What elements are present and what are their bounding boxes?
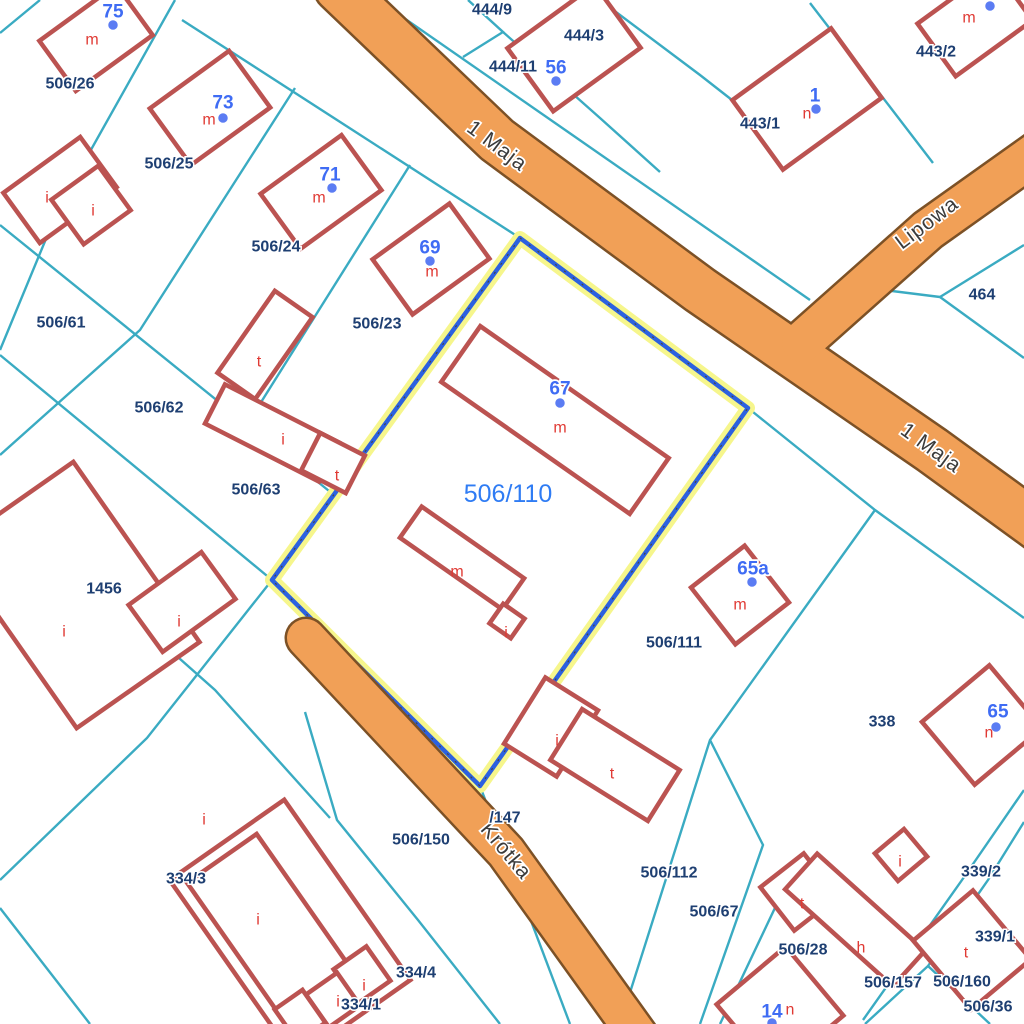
parcel-number-label: 339/1 bbox=[975, 929, 1015, 946]
parcel-number-label: 506/26 bbox=[46, 76, 95, 93]
building-type-letter: i bbox=[898, 854, 902, 871]
address-point-dot[interactable] bbox=[555, 398, 566, 409]
parcel-number-label: 1456 bbox=[86, 581, 122, 598]
address-point-dot[interactable] bbox=[767, 1018, 778, 1024]
parcel-boundary-line bbox=[0, 908, 90, 1024]
building-type-letter: i bbox=[45, 190, 49, 207]
building-type-letter: i bbox=[62, 624, 66, 641]
parcel-number-label: 506/36 bbox=[964, 999, 1013, 1016]
building-outline bbox=[150, 51, 270, 165]
parcel-number-label: 334/3 bbox=[166, 871, 206, 888]
address-point-dot[interactable] bbox=[747, 577, 758, 588]
building-type-letter: i bbox=[504, 625, 508, 642]
selected-parcel-number-label: 506/110 bbox=[464, 480, 553, 508]
parcel-boundary-line bbox=[940, 297, 1024, 358]
building-type-letter: h bbox=[857, 940, 866, 957]
parcel-boundary-line bbox=[0, 0, 40, 33]
parcel-number-label: 506/150 bbox=[392, 832, 450, 849]
parcel-number-label: 506/25 bbox=[145, 156, 194, 173]
building-outline bbox=[550, 709, 679, 821]
building-type-letter: n bbox=[786, 1002, 795, 1019]
building-type-letter: i bbox=[91, 203, 95, 220]
building-type-letter: m bbox=[962, 10, 975, 27]
building-type-letter: i bbox=[256, 912, 260, 929]
building-type-letter: m bbox=[85, 32, 98, 49]
parcel-number-label: 506/112 bbox=[641, 865, 698, 882]
parcel-number-label: 506/157 bbox=[864, 975, 922, 992]
building-type-letter: t bbox=[800, 896, 805, 913]
building-type-letter: n bbox=[985, 725, 994, 742]
parcel-number-label: 464 bbox=[969, 287, 996, 304]
address-point-dot[interactable] bbox=[218, 113, 229, 124]
address-number-label: 73 bbox=[212, 93, 233, 114]
parcel-number-label: /147 bbox=[489, 810, 520, 827]
address-point-dot[interactable] bbox=[551, 76, 562, 87]
parcel-number-label: 506/111 bbox=[646, 635, 702, 652]
building-type-letter: n bbox=[803, 106, 812, 123]
parcel-number-label: 506/160 bbox=[933, 974, 991, 991]
address-number-label: 65 bbox=[987, 702, 1009, 723]
building-type-letter: i bbox=[281, 432, 285, 449]
parcel-number-label: 506/24 bbox=[252, 239, 301, 256]
address-point-dot[interactable] bbox=[985, 1, 996, 12]
building-outline bbox=[400, 507, 524, 610]
parcel-number-label: 506/61 bbox=[37, 315, 86, 332]
building-type-letter: m bbox=[733, 597, 746, 614]
building-type-letter: i bbox=[555, 733, 559, 750]
parcel-number-label: 444/11 bbox=[489, 59, 537, 76]
parcel-number-label: 338 bbox=[869, 714, 896, 731]
building-type-letter: m bbox=[450, 564, 463, 581]
parcel-number-label: 334/4 bbox=[396, 965, 436, 982]
parcel-number-label: 444/3 bbox=[564, 28, 604, 45]
building-type-letter: m bbox=[202, 112, 215, 129]
parcel-number-label: 506/62 bbox=[135, 400, 184, 417]
building-type-letter: i bbox=[202, 812, 206, 829]
parcel-number-label: 443/2 bbox=[916, 44, 956, 61]
address-point-dot[interactable] bbox=[108, 20, 119, 31]
parcel-number-label: 506/63 bbox=[232, 482, 281, 499]
parcel-number-label: 334/1 bbox=[341, 997, 381, 1014]
building-outline bbox=[507, 0, 640, 111]
building-type-letter: m bbox=[312, 190, 325, 207]
parcel-number-label: 443/1 bbox=[740, 116, 780, 133]
address-point-dot[interactable] bbox=[811, 104, 822, 115]
building-type-letter: t bbox=[964, 945, 969, 962]
building-type-letter: i bbox=[362, 978, 366, 995]
address-point-dot[interactable] bbox=[327, 183, 338, 194]
map-canvas[interactable]: 1 Maja1 MajaLipowaKrótka506/26506/25444/… bbox=[0, 0, 1024, 1024]
building-outline bbox=[922, 665, 1024, 784]
parcel-number-label: 506/23 bbox=[353, 316, 402, 333]
building-type-letter: i bbox=[336, 994, 340, 1011]
building-type-letter: t bbox=[335, 468, 340, 485]
building-type-letter: m bbox=[425, 264, 438, 281]
building-type-letter: t bbox=[610, 766, 615, 783]
building-type-letter: m bbox=[553, 420, 566, 437]
parcel-number-label: 339/2 bbox=[961, 864, 1001, 881]
building-type-letter: t bbox=[257, 354, 262, 371]
building-outline bbox=[913, 890, 1024, 1009]
parcel-number-label: 444/9 bbox=[472, 2, 512, 19]
address-number-label: 67 bbox=[549, 379, 570, 400]
parcel-number-label: 506/67 bbox=[690, 904, 739, 921]
cadastral-map[interactable]: 1 Maja1 MajaLipowaKrótka506/26506/25444/… bbox=[0, 0, 1024, 1024]
building-outline bbox=[732, 28, 881, 169]
building-type-letter: i bbox=[177, 614, 181, 631]
parcel-number-label: 506/28 bbox=[779, 942, 828, 959]
